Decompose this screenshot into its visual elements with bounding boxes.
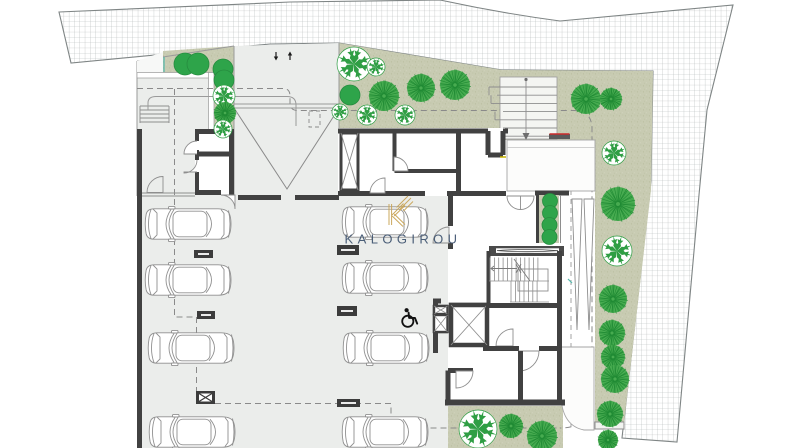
svg-text:KALOGIROU: KALOGIROU bbox=[345, 232, 462, 247]
